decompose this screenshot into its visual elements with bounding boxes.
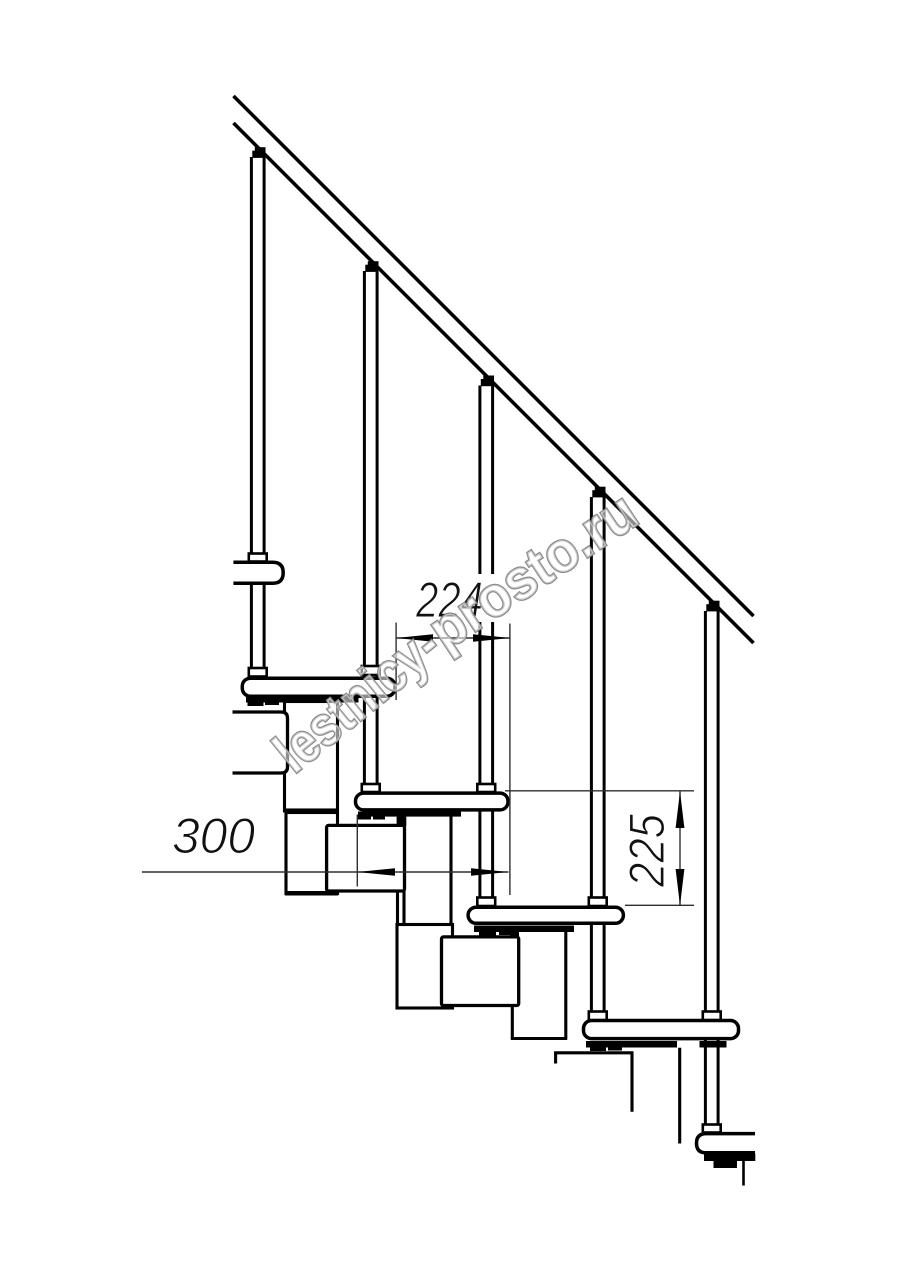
svg-text:300: 300 [172, 808, 255, 864]
svg-text:225: 225 [619, 814, 675, 888]
